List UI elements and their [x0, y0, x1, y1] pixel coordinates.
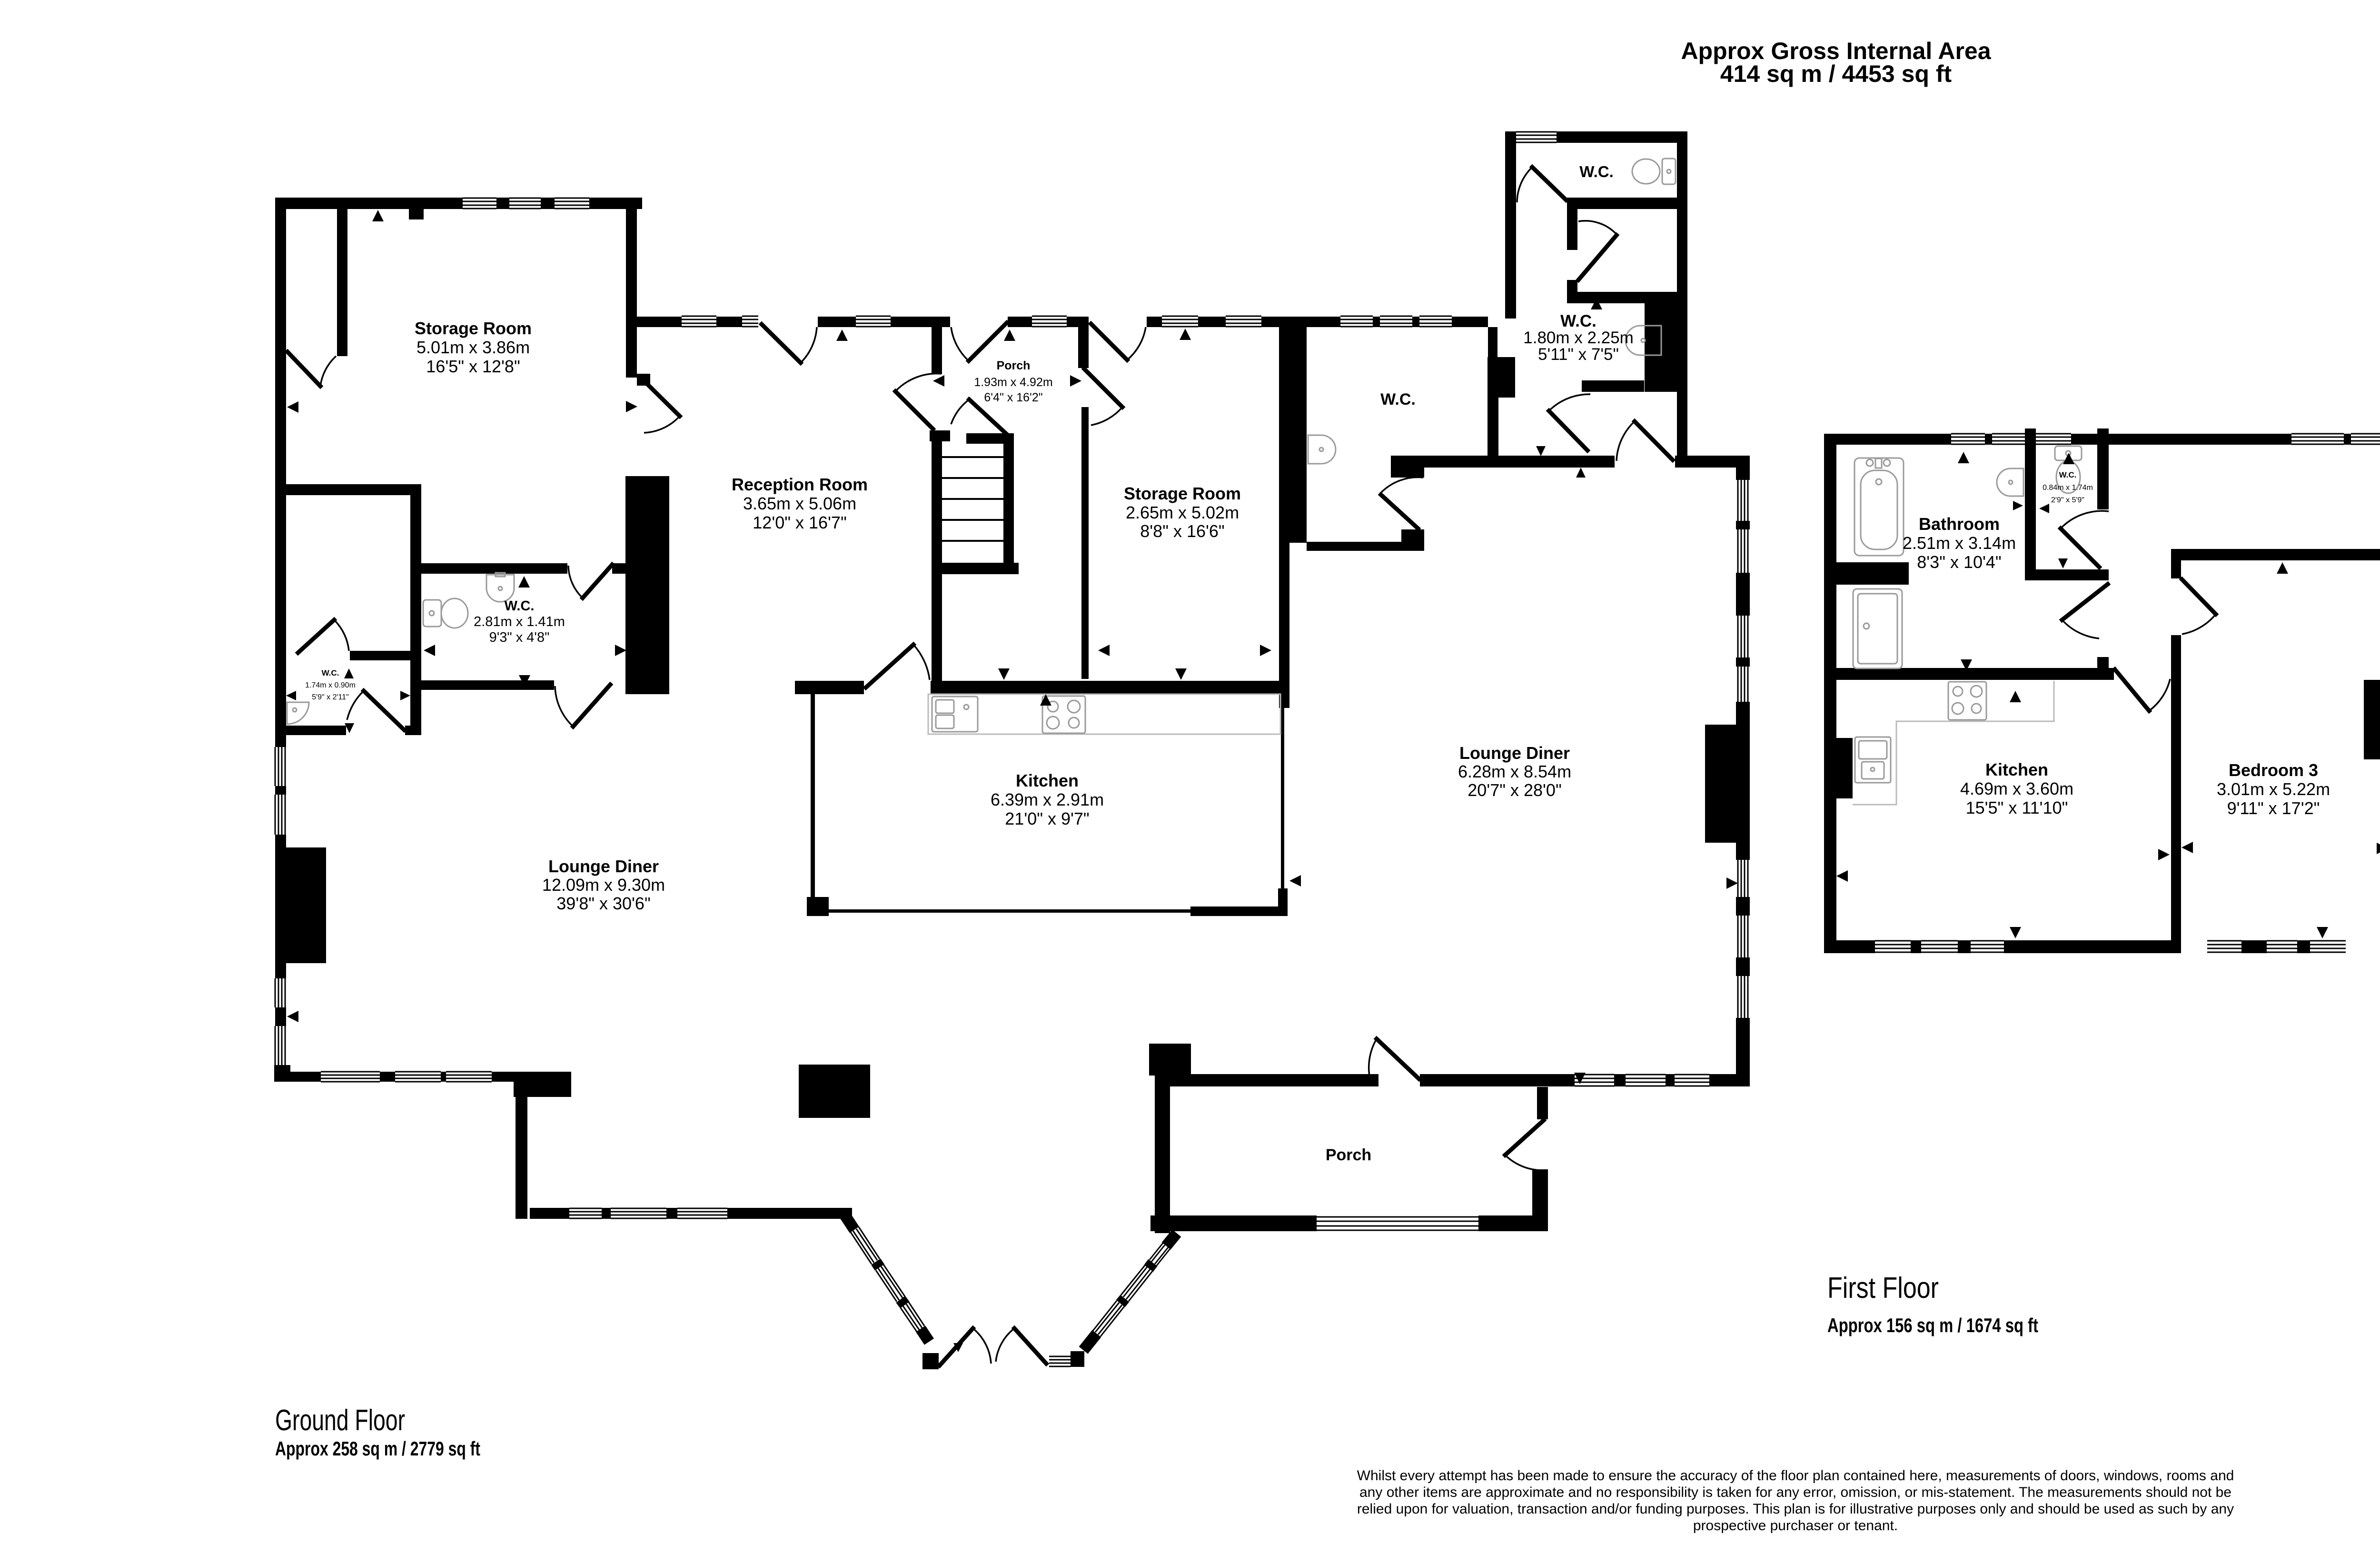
svg-text:Porch: Porch	[997, 359, 1031, 372]
svg-text:6.28m x 8.54m: 6.28m x 8.54m	[1458, 762, 1571, 781]
svg-text:W.C.: W.C.	[1380, 390, 1416, 408]
svg-text:3.01m x 5.22m: 3.01m x 5.22m	[2217, 779, 2330, 799]
svg-text:2'9" x 5'9": 2'9" x 5'9"	[2051, 496, 2084, 504]
svg-text:15'5" x 11'10": 15'5" x 11'10"	[1966, 798, 2068, 817]
svg-text:W.C.: W.C.	[1579, 163, 1614, 180]
svg-text:2.65m x 5.02m: 2.65m x 5.02m	[1126, 503, 1239, 522]
svg-text:Reception Room: Reception Room	[732, 475, 868, 494]
svg-text:prospective purchaser or tenan: prospective purchaser or tenant.	[1693, 1518, 1898, 1534]
svg-text:Storage Room: Storage Room	[415, 319, 532, 338]
svg-text:Storage Room: Storage Room	[1124, 484, 1241, 503]
svg-text:Kitchen: Kitchen	[1016, 771, 1079, 790]
svg-text:W.C.: W.C.	[505, 598, 535, 614]
svg-text:Approx 156 sq m / 1674 sq ft: Approx 156 sq m / 1674 sq ft	[1827, 1314, 2038, 1336]
svg-text:Kitchen: Kitchen	[1985, 760, 2048, 779]
svg-text:W.C.: W.C.	[322, 668, 339, 677]
svg-text:relied upon for valuation, tra: relied upon for valuation, transaction a…	[1357, 1501, 2234, 1517]
svg-text:W.C.: W.C.	[2059, 470, 2077, 479]
svg-text:First Floor: First Floor	[1827, 1272, 1939, 1305]
svg-text:12'0" x 16'7": 12'0" x 16'7"	[753, 513, 846, 532]
svg-text:W.C.: W.C.	[1560, 312, 1597, 330]
svg-text:8'3" x 10'4": 8'3" x 10'4"	[1917, 552, 2001, 572]
svg-text:2.81m x 1.41m: 2.81m x 1.41m	[474, 614, 565, 629]
svg-text:3.65m x 5.06m: 3.65m x 5.06m	[743, 494, 856, 513]
svg-text:1.80m x 2.25m: 1.80m x 2.25m	[1523, 329, 1634, 347]
svg-text:1.74m x 0.90m: 1.74m x 0.90m	[305, 681, 356, 689]
svg-text:Bathroom: Bathroom	[1919, 514, 2000, 534]
svg-text:any other items are approximat: any other items are approximate and no r…	[1359, 1484, 2231, 1500]
svg-text:8'8" x 16'6": 8'8" x 16'6"	[1140, 521, 1224, 541]
svg-text:1.93m x 4.92m: 1.93m x 4.92m	[974, 376, 1052, 389]
svg-text:414 sq m / 4453 sq ft: 414 sq m / 4453 sq ft	[1720, 60, 1952, 87]
svg-text:6'4" x 16'2": 6'4" x 16'2"	[984, 391, 1042, 404]
svg-text:5.01m x 3.86m: 5.01m x 3.86m	[416, 338, 530, 357]
svg-text:Approx 258 sq m / 2779 sq ft: Approx 258 sq m / 2779 sq ft	[275, 1437, 480, 1460]
svg-text:5'9" x 2'11": 5'9" x 2'11"	[312, 693, 349, 701]
svg-text:9'3" x 4'8": 9'3" x 4'8"	[489, 630, 550, 645]
svg-text:16'5" x 12'8": 16'5" x 12'8"	[426, 357, 520, 376]
svg-text:Ground Floor: Ground Floor	[275, 1404, 405, 1437]
svg-text:Whilst every attempt has been: Whilst every attempt has been made to en…	[1357, 1468, 2234, 1484]
svg-text:12.09m x 9.30m: 12.09m x 9.30m	[542, 875, 665, 895]
svg-text:9'11" x 17'2": 9'11" x 17'2"	[2227, 798, 2320, 818]
svg-text:21'0" x 9'7": 21'0" x 9'7"	[1005, 809, 1089, 828]
svg-text:Bedroom 3: Bedroom 3	[2229, 760, 2318, 780]
svg-text:Lounge Diner: Lounge Diner	[548, 857, 659, 876]
svg-text:Lounge Diner: Lounge Diner	[1459, 743, 1570, 763]
svg-text:0.84m x 1.74m: 0.84m x 1.74m	[2043, 484, 2093, 492]
svg-text:39'8" x 30'6": 39'8" x 30'6"	[556, 894, 650, 913]
svg-text:6.39m x 2.91m: 6.39m x 2.91m	[991, 790, 1104, 809]
svg-text:4.69m x 3.60m: 4.69m x 3.60m	[1960, 779, 2073, 798]
svg-text:20'7" x 28'0": 20'7" x 28'0"	[1468, 780, 1561, 800]
svg-text:5'11" x 7'5": 5'11" x 7'5"	[1538, 345, 1619, 364]
svg-text:Porch: Porch	[1326, 1146, 1371, 1164]
svg-text:2.51m x 3.14m: 2.51m x 3.14m	[1903, 533, 2016, 553]
